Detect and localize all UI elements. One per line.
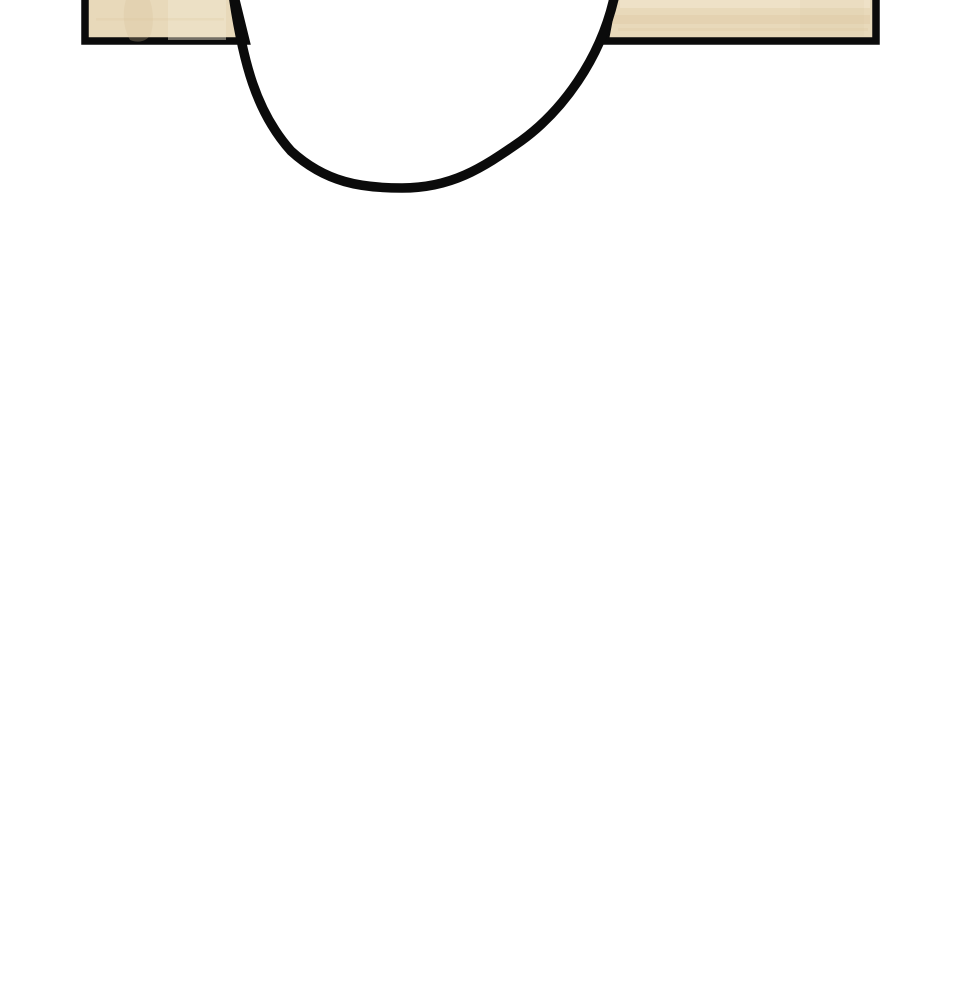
illustration-svg	[0, 0, 970, 1000]
round-object-outline-curve	[233, 0, 615, 188]
comic-panel-page	[0, 0, 970, 1000]
wood-board-left-grain-blotch	[124, 0, 153, 42]
wood-board-left-grain-line	[96, 18, 224, 21]
wood-board-right-corner-shade	[800, 0, 864, 36]
